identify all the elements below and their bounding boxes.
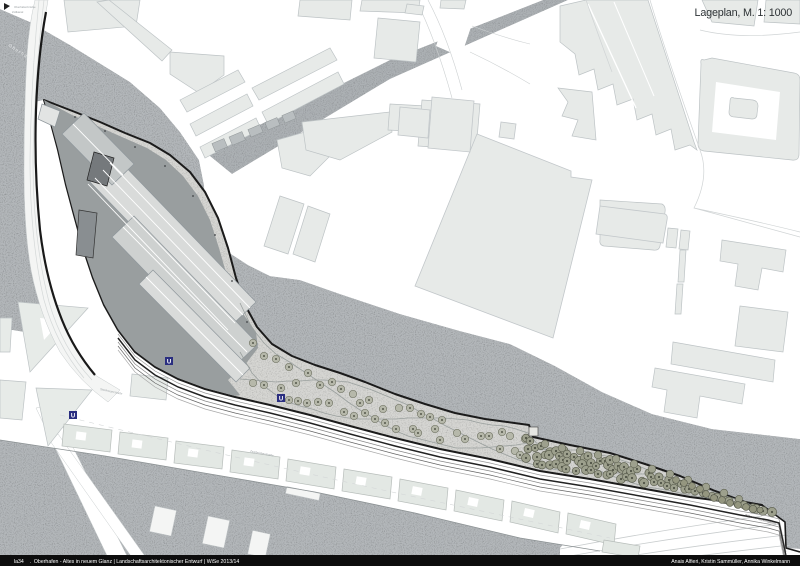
- svg-text:Zollkanal: Zollkanal: [12, 10, 24, 14]
- svg-text:la34 . Oberhafen - Altes i: la34 . Oberhafen - Altes in neuem Glanz …: [14, 559, 239, 565]
- svg-text:Anais Alfieri, Kristin Sammüll: Anais Alfieri, Kristin Sammüller, Annika…: [671, 559, 790, 565]
- svg-text:Lageplan, M. 1: 1000: Lageplan, M. 1: 1000: [695, 7, 793, 19]
- svg-text:U: U: [71, 414, 75, 420]
- svg-text:U: U: [279, 397, 283, 403]
- svg-text:Oberhafenbrücke: Oberhafenbrücke: [14, 5, 36, 9]
- svg-text:U: U: [167, 360, 171, 366]
